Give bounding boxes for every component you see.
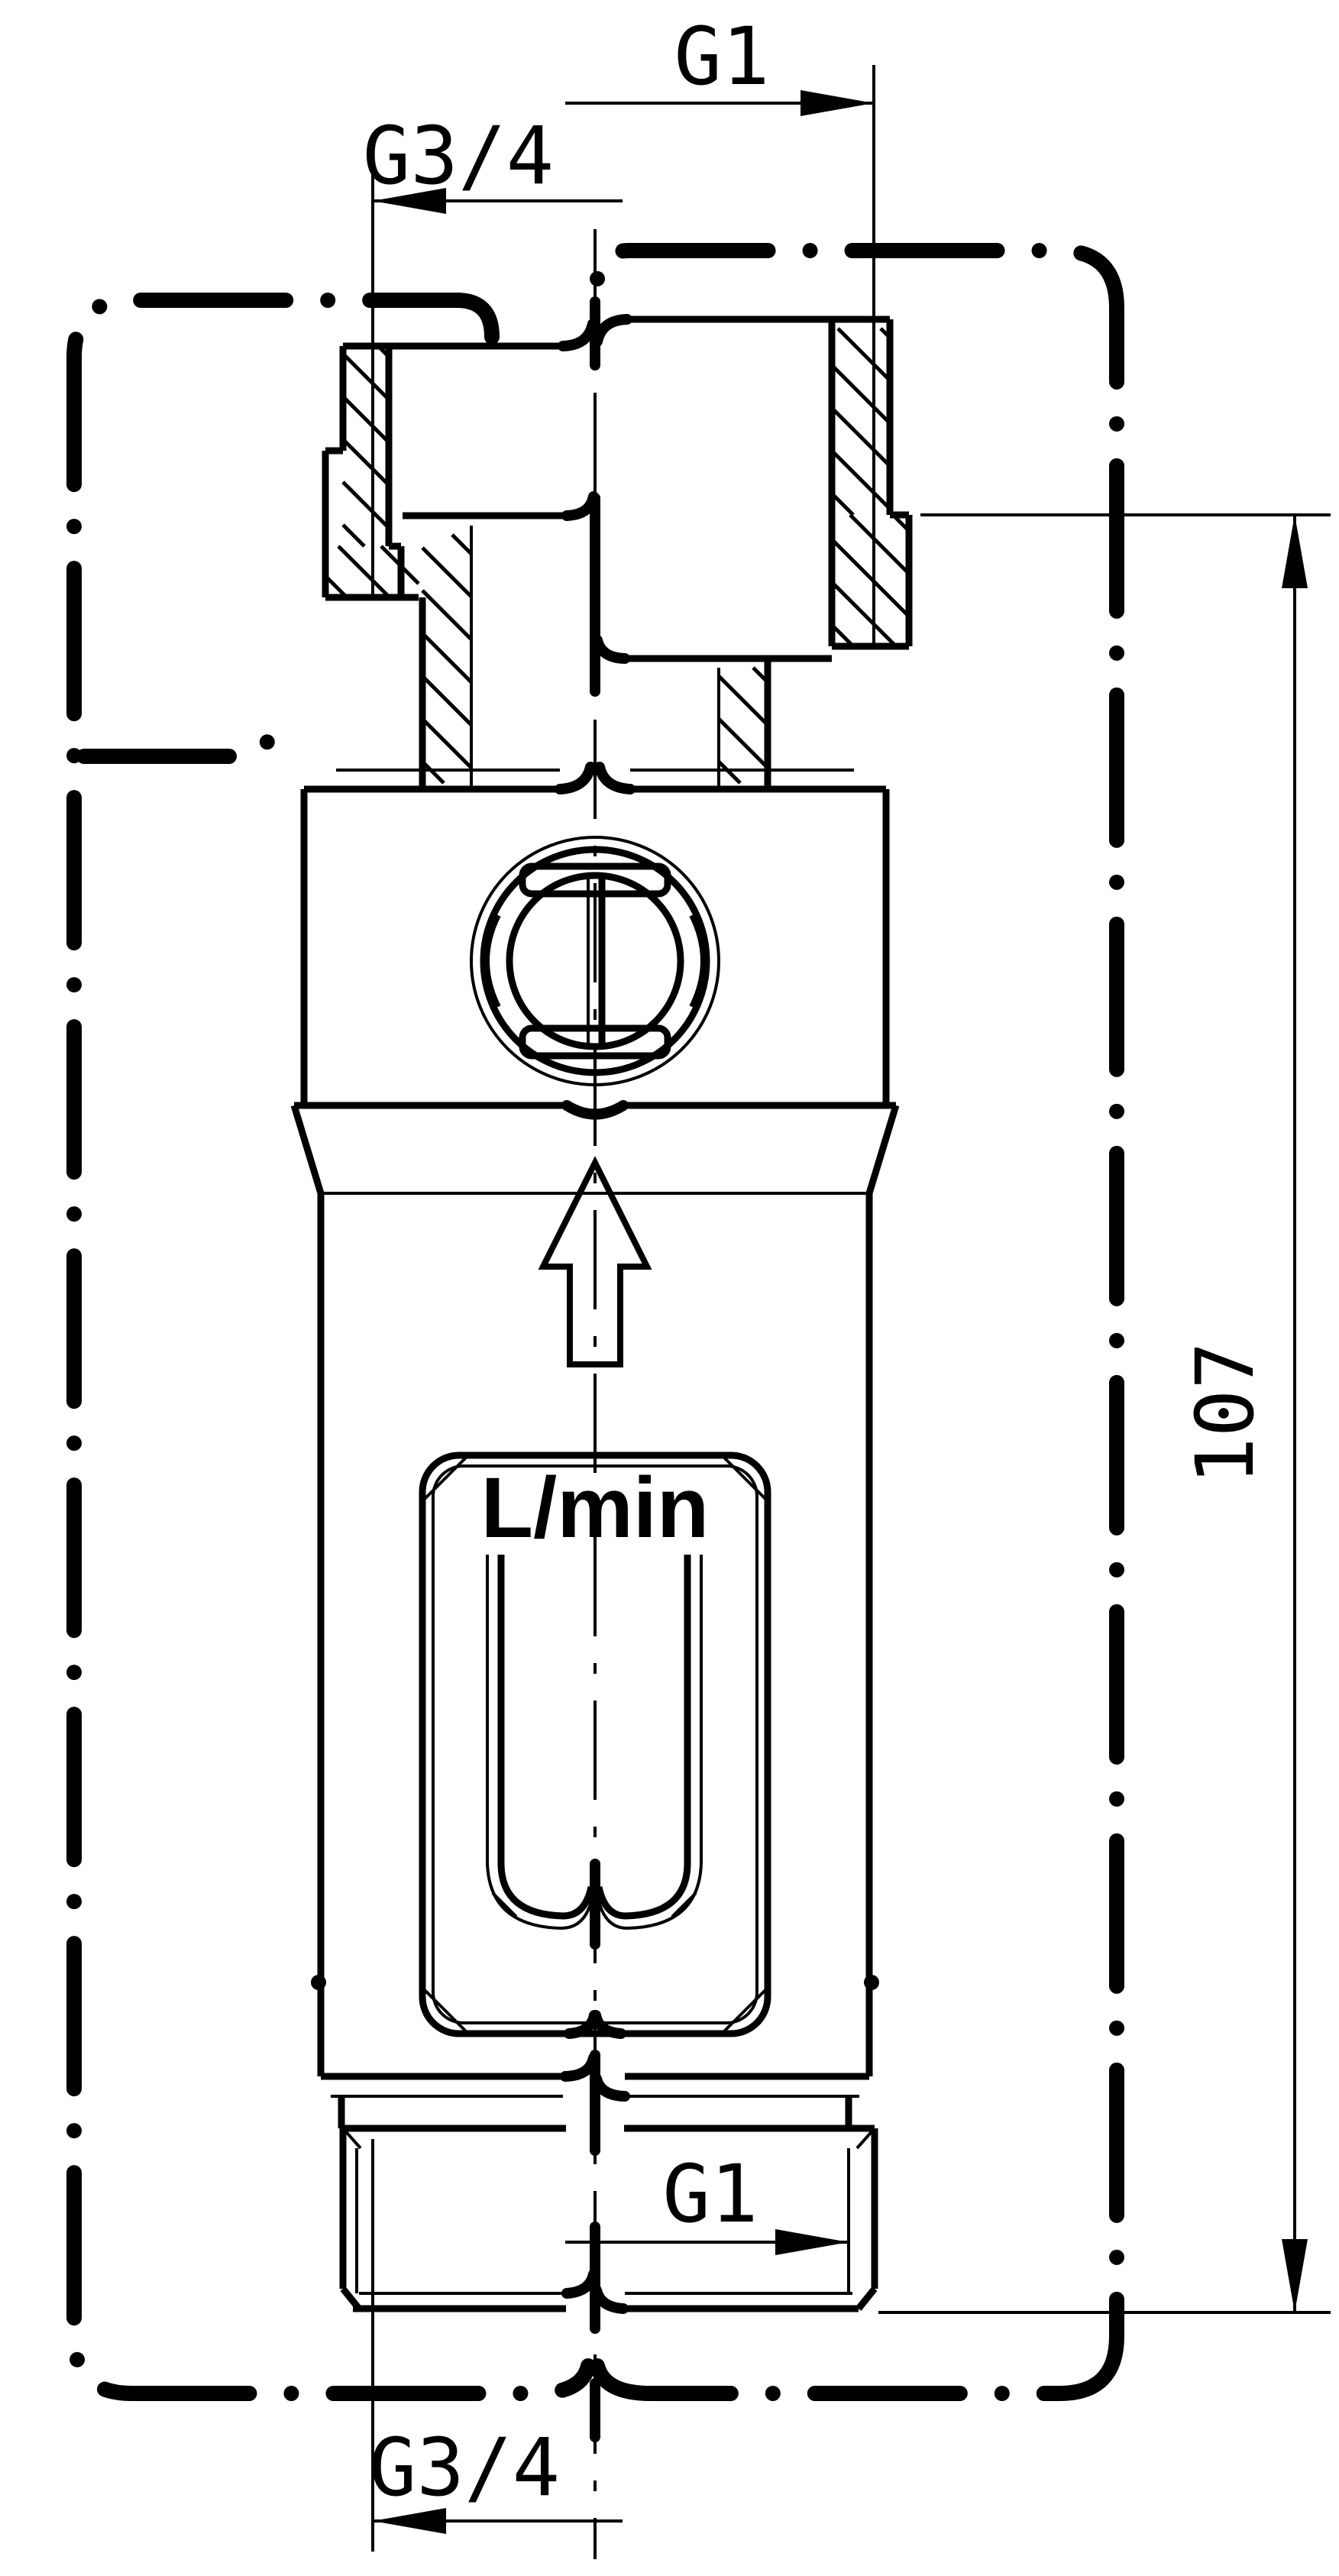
technical-drawing-canvas: L/min G1 G3/4 G1	[0, 0, 1339, 2576]
hatch-g1-nut-wall	[832, 328, 890, 515]
dimension-g1-top: G1	[565, 10, 874, 319]
dim-label-g34-bottom: G3/4	[369, 2421, 560, 2514]
bottom-fitting	[343, 2128, 875, 2309]
section-break-marks	[560, 302, 630, 2437]
top-fitting-g1-right-half	[623, 65, 909, 787]
dimension-g1-bottom: G1	[565, 2147, 849, 2255]
dimension-length-107: 107	[878, 515, 1331, 2312]
dim-label-overall-length: 107	[1179, 1341, 1272, 1485]
arrowhead-right-icon	[800, 90, 874, 116]
hatch-g34-nut-wall	[343, 346, 389, 546]
hatch-g1-nut-skirt	[832, 515, 909, 646]
dim-label-g1-top: G1	[674, 10, 769, 103]
hatch-right-spigot	[719, 668, 768, 783]
top-fitting-g34-left-half	[325, 164, 569, 787]
arrowhead-down-icon	[1282, 2239, 1308, 2312]
arrowhead-up-icon	[1282, 515, 1308, 588]
dim-label-g1-bottom: G1	[662, 2147, 758, 2241]
hatch-left-spigot	[422, 535, 471, 783]
drawing-page: L/min G1 G3/4 G1	[0, 0, 1339, 2576]
dimension-g34-bottom: G3/4	[369, 2139, 623, 2552]
arrowhead-right-icon	[775, 2229, 849, 2255]
scale-unit-label: L/min	[481, 1460, 710, 1555]
dim-label-g34-top: G3/4	[363, 109, 554, 202]
meter-tube-body	[321, 1193, 869, 2128]
